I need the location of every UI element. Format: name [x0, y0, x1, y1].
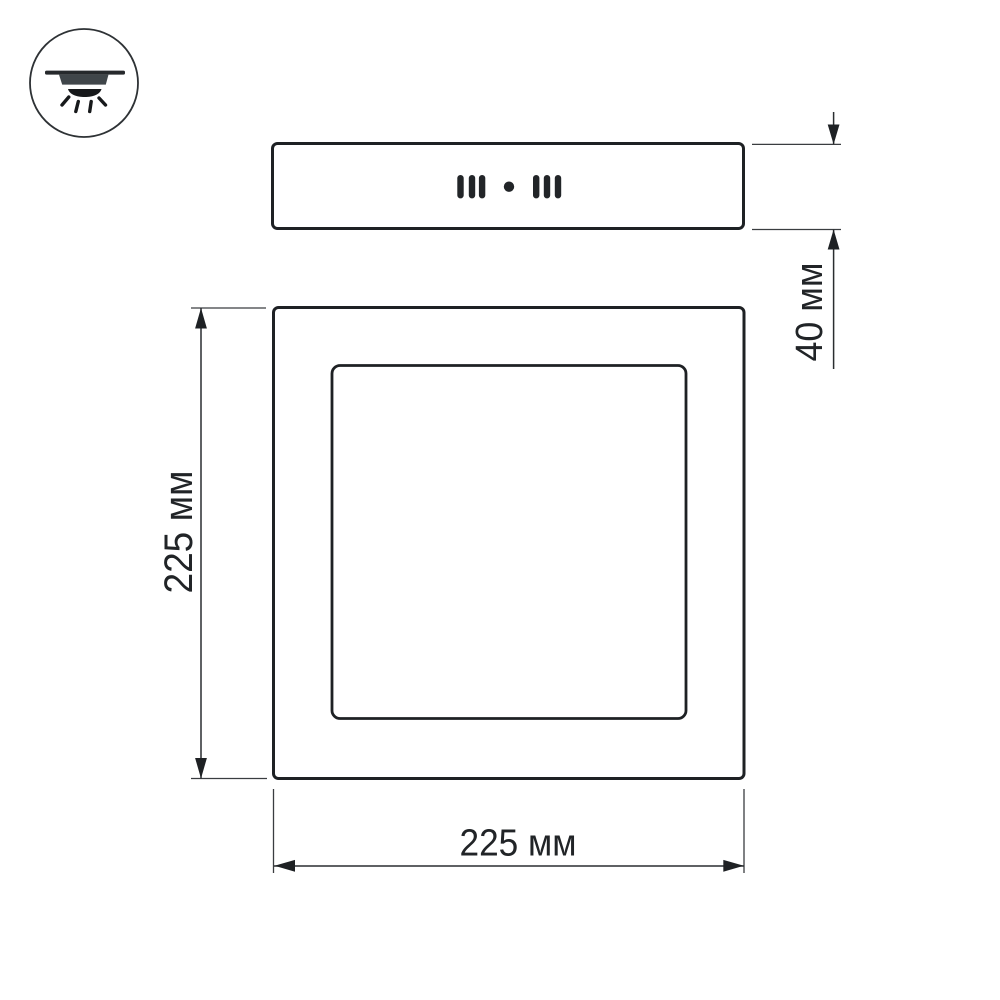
svg-text:225 мм: 225 мм — [460, 823, 577, 865]
svg-text:40 мм: 40 мм — [789, 263, 831, 362]
svg-text:225 мм: 225 мм — [157, 471, 201, 594]
